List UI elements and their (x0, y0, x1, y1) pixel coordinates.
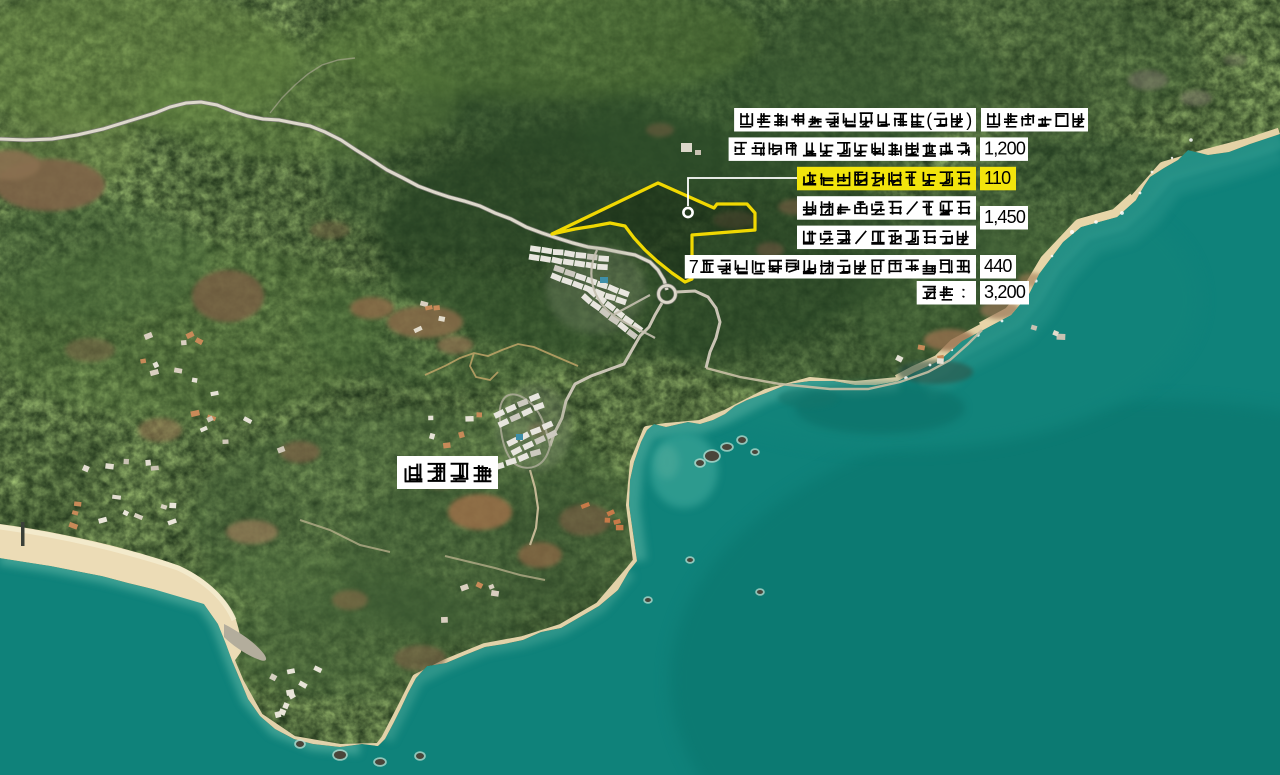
svg-text:440: 440 (984, 256, 1012, 276)
svg-text:(: ( (926, 110, 932, 130)
svg-text:1,450: 1,450 (984, 207, 1026, 227)
svg-text:1,200: 1,200 (984, 139, 1026, 159)
svg-text:3,200: 3,200 (984, 282, 1026, 302)
svg-text:7: 7 (689, 257, 699, 277)
svg-text:110: 110 (984, 168, 1011, 188)
svg-text:): ) (966, 110, 972, 130)
